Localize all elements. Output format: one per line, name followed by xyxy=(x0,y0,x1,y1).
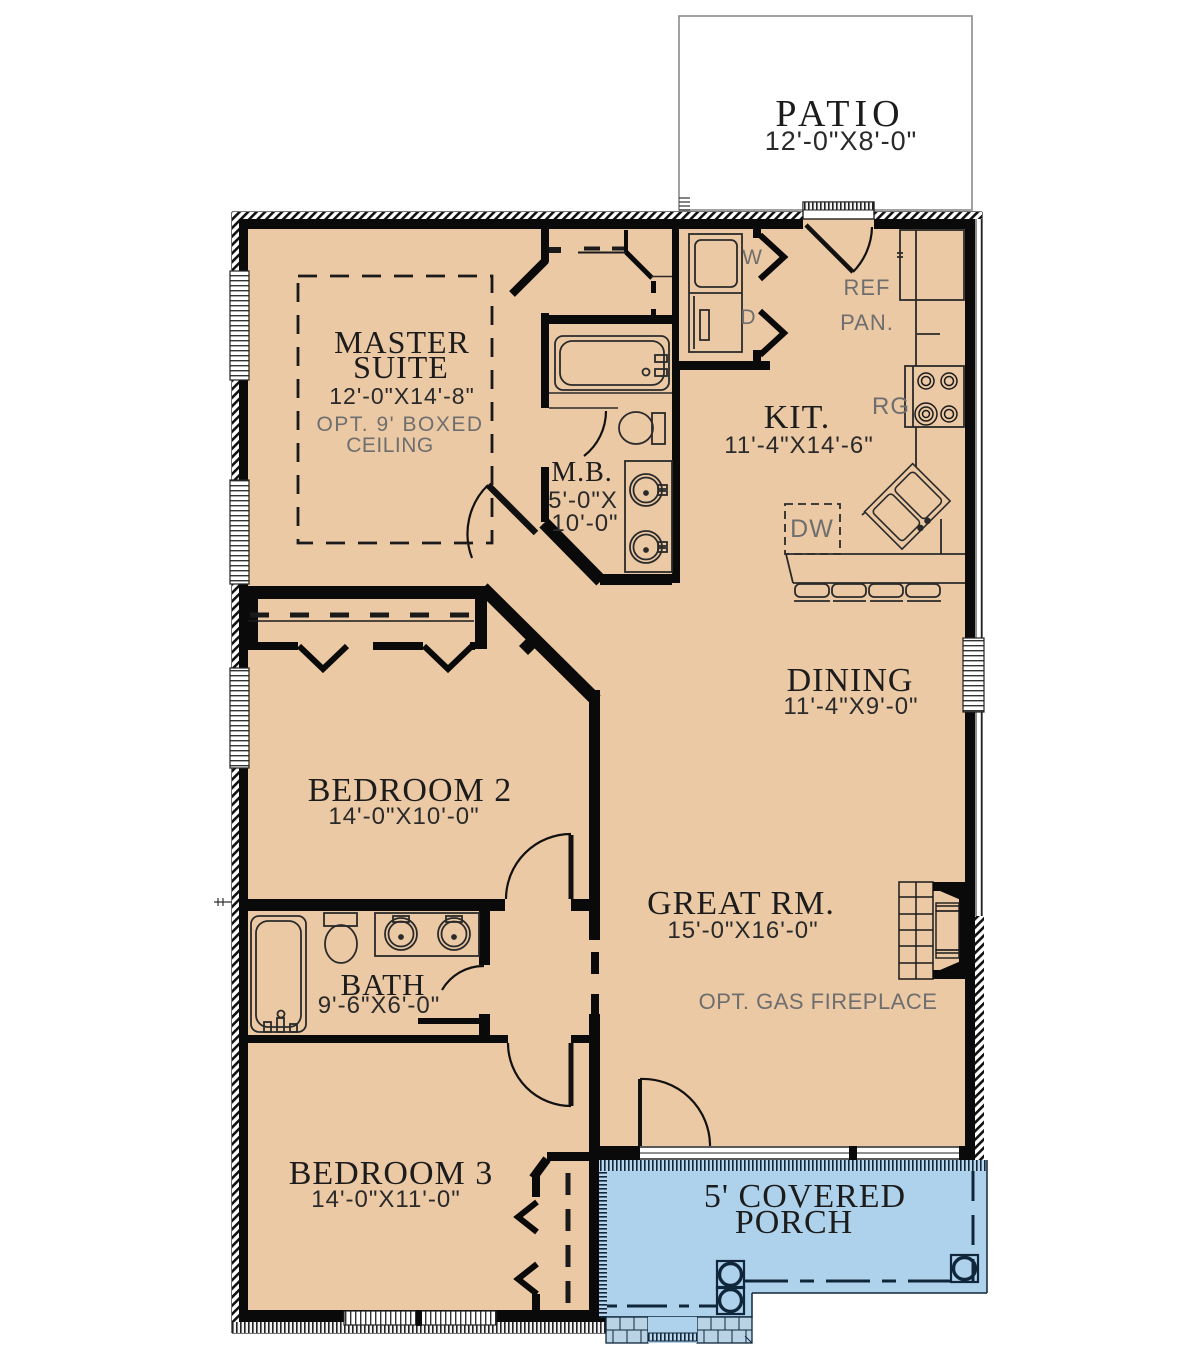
svg-text:11'-4"X9'-0": 11'-4"X9'-0" xyxy=(783,693,918,720)
svg-text:RG: RG xyxy=(872,393,910,420)
svg-text:DW: DW xyxy=(790,515,834,543)
svg-text:KIT.: KIT. xyxy=(764,399,831,436)
svg-text:11'-4"X14'-6": 11'-4"X14'-6" xyxy=(724,432,874,459)
svg-text:M.B.: M.B. xyxy=(551,457,613,488)
svg-text:OPT. GAS FIREPLACE: OPT. GAS FIREPLACE xyxy=(699,989,938,1014)
svg-text:CEILING: CEILING xyxy=(346,434,434,457)
svg-text:REF: REF xyxy=(844,275,891,300)
svg-text:W: W xyxy=(742,246,762,269)
svg-text:D: D xyxy=(740,306,755,329)
svg-text:PORCH: PORCH xyxy=(735,1204,853,1241)
svg-text:PAN.: PAN. xyxy=(840,310,894,335)
svg-text:15'-0"X16'-0": 15'-0"X16'-0" xyxy=(667,917,818,944)
svg-text:12'-0"X8'-0": 12'-0"X8'-0" xyxy=(765,126,918,156)
svg-text:14'-0"X11'-0": 14'-0"X11'-0" xyxy=(311,1186,461,1213)
svg-text:9'-6"X6'-0": 9'-6"X6'-0" xyxy=(318,992,441,1019)
svg-text:SUITE: SUITE xyxy=(353,349,449,385)
svg-text:10'-0": 10'-0" xyxy=(551,510,618,537)
svg-text:OPT. 9' BOXED: OPT. 9' BOXED xyxy=(316,413,483,436)
svg-text:14'-0"X10'-0": 14'-0"X10'-0" xyxy=(328,803,479,830)
svg-text:12'-0"X14'-8": 12'-0"X14'-8" xyxy=(329,383,475,409)
